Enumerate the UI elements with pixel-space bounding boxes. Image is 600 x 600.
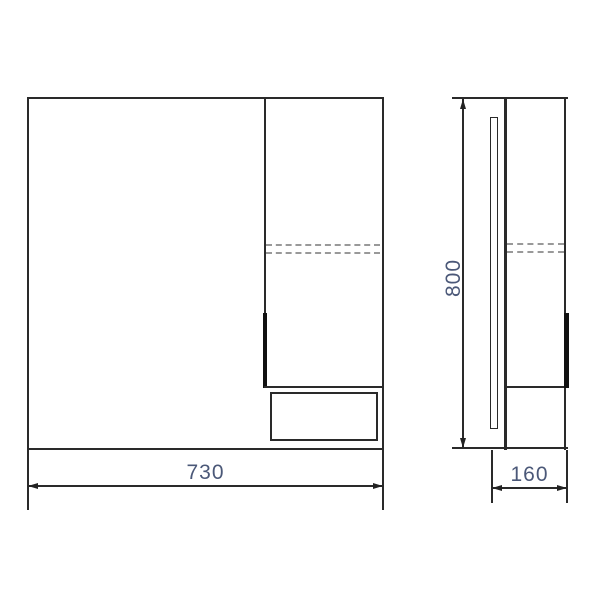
- side-cabinet-front-line: [504, 97, 507, 450]
- front-door-handle: [263, 313, 267, 388]
- side-compartment-line: [505, 386, 565, 388]
- front-hidden-shelf-dash-bottom: [266, 252, 380, 254]
- depth-arrow-left: [492, 485, 502, 491]
- height-arrow-top: [460, 99, 466, 109]
- side-hidden-shelf-dash-bottom: [507, 251, 564, 253]
- width-dimension-line: [28, 485, 383, 487]
- side-door-handle: [564, 313, 569, 388]
- width-dimension-label: 730: [28, 462, 383, 483]
- depth-dimension-label: 160: [492, 464, 567, 485]
- technical-drawing-canvas: 730 800 160: [0, 0, 600, 600]
- width-arrow-left: [28, 483, 38, 489]
- depth-dimension-line: [492, 487, 567, 489]
- side-top-edge-line: [452, 97, 568, 99]
- front-compartment-top-line: [264, 386, 384, 388]
- height-dimension-label: 800: [443, 248, 465, 308]
- side-hidden-shelf-dash-top: [507, 243, 564, 245]
- depth-arrow-right: [557, 485, 567, 491]
- side-bottom-edge-line: [452, 447, 568, 449]
- height-arrow-bottom: [460, 438, 466, 448]
- side-cabinet-back-line: [564, 97, 566, 450]
- side-mirror-panel: [490, 117, 498, 429]
- width-arrow-right: [373, 483, 383, 489]
- front-open-compartment: [270, 392, 378, 441]
- front-hidden-shelf-dash-top: [266, 244, 380, 246]
